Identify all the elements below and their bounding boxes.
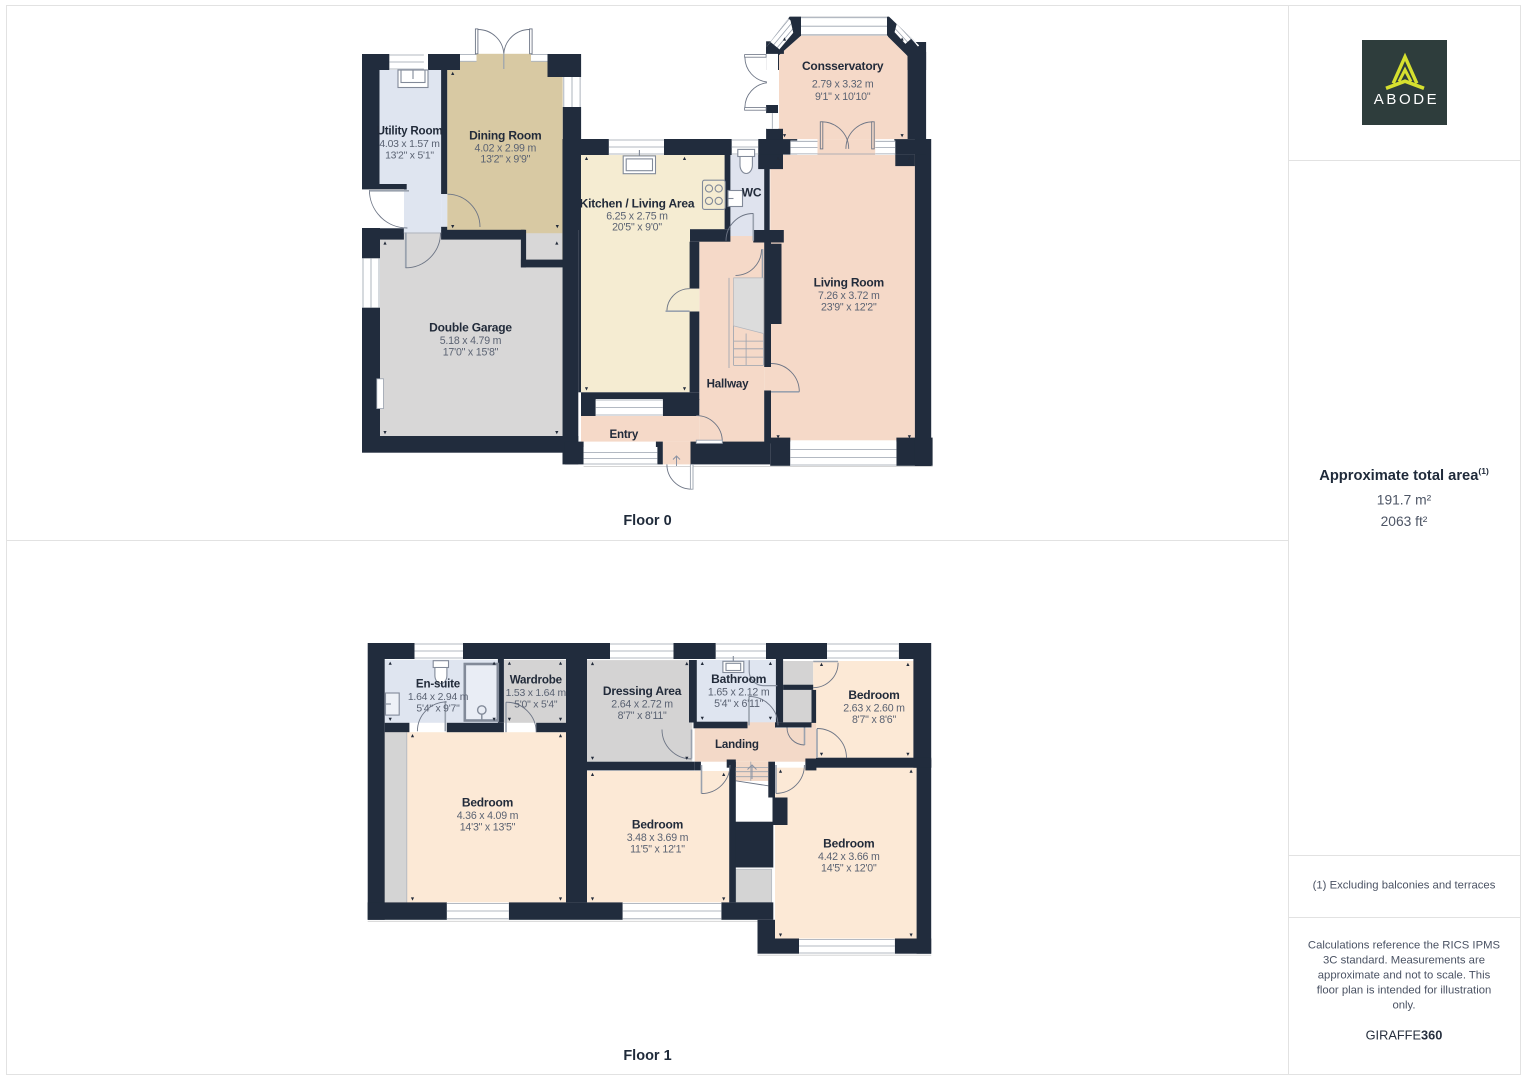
svg-text:Dressing Area: Dressing Area [603,684,682,698]
svg-text:2063 ft²: 2063 ft² [1381,514,1428,529]
svg-text:GIRAFFE360: GIRAFFE360 [1366,1028,1443,1043]
svg-text:Floor 0: Floor 0 [623,513,671,529]
svg-text:11'5" x 12'1": 11'5" x 12'1" [630,844,685,856]
svg-text:8'7" x 8'6": 8'7" x 8'6" [852,714,897,726]
svg-text:1.53 x 1.64 m: 1.53 x 1.64 m [506,688,566,699]
svg-text:Kitchen / Living Area: Kitchen / Living Area [580,197,695,211]
svg-text:7.26 x 3.72 m: 7.26 x 3.72 m [818,290,880,302]
svg-text:Living Room: Living Room [814,276,884,290]
svg-text:20'5" x 9'0": 20'5" x 9'0" [612,222,662,234]
svg-text:8'7" x 8'11": 8'7" x 8'11" [618,710,667,722]
svg-text:2.63 x 2.60 m: 2.63 x 2.60 m [843,702,905,714]
svg-text:Hallway: Hallway [707,378,750,391]
svg-text:Bedroom: Bedroom [632,818,683,832]
svg-text:3.48 x 3.69 m: 3.48 x 3.69 m [627,832,689,844]
svg-text:4.36 x 4.09 m: 4.36 x 4.09 m [457,810,519,822]
svg-text:Utility Room: Utility Room [377,125,443,138]
svg-text:Floor 1: Floor 1 [623,1048,671,1064]
svg-text:4.03 x 1.57 m: 4.03 x 1.57 m [379,139,439,150]
svg-text:2.64 x 2.72 m: 2.64 x 2.72 m [611,699,673,711]
svg-text:191.7 m²: 191.7 m² [1377,493,1432,508]
svg-text:1.65 x 2.12 m: 1.65 x 2.12 m [708,687,770,699]
svg-text:4.42 x 3.66 m: 4.42 x 3.66 m [818,851,880,863]
svg-text:1.64 x 2.94 m: 1.64 x 2.94 m [408,692,468,703]
svg-text:En-suite: En-suite [416,678,461,691]
svg-text:only.: only. [1392,1000,1415,1012]
svg-text:Entry: Entry [609,428,638,441]
svg-text:9'1" x 10'10": 9'1" x 10'10" [815,91,871,103]
svg-text:floor plan is intended for ill: floor plan is intended for illustration [1317,985,1492,997]
svg-text:approximate and not to scale.: approximate and not to scale. This [1318,970,1491,982]
svg-text:Wardrobe: Wardrobe [510,674,563,687]
svg-text:Calculations reference the RIC: Calculations reference the RICS IPMS [1308,940,1501,952]
svg-text:5'0" x 5'4": 5'0" x 5'4" [514,700,558,711]
svg-text:Consservatory: Consservatory [802,59,884,73]
svg-text:Bedroom: Bedroom [462,796,513,810]
svg-text:23'9" x 12'2": 23'9" x 12'2" [821,301,877,313]
svg-text:2.79 x 3.32 m: 2.79 x 3.32 m [812,78,874,90]
svg-text:5.18 x 4.79 m: 5.18 x 4.79 m [440,335,502,347]
svg-text:Double Garage: Double Garage [429,321,512,335]
svg-text:Bedroom: Bedroom [848,688,899,702]
svg-text:Dining Room: Dining Room [469,128,541,142]
svg-text:17'0" x 15'8": 17'0" x 15'8" [443,347,499,359]
svg-text:5'4" x 6'11": 5'4" x 6'11" [714,698,763,710]
svg-text:14'3" x 13'5": 14'3" x 13'5" [460,822,516,834]
svg-text:Approximate total area(1): Approximate total area(1) [1319,466,1489,484]
svg-text:Bathroom: Bathroom [711,672,766,686]
svg-text:14'5" x 12'0": 14'5" x 12'0" [821,863,877,875]
svg-text:WC: WC [742,186,762,200]
svg-text:ABODE: ABODE [1374,91,1440,108]
svg-text:(1) Excluding balconies and te: (1) Excluding balconies and terraces [1313,880,1496,892]
svg-text:3C standard. Measurements are: 3C standard. Measurements are [1323,955,1485,967]
svg-text:5'4" x 9'7": 5'4" x 9'7" [416,704,460,715]
svg-text:Landing: Landing [715,738,759,751]
svg-text:Bedroom: Bedroom [823,837,874,851]
svg-text:13'2" x 9'9": 13'2" x 9'9" [480,154,530,166]
svg-text:13'2" x 5'1": 13'2" x 5'1" [385,151,434,162]
